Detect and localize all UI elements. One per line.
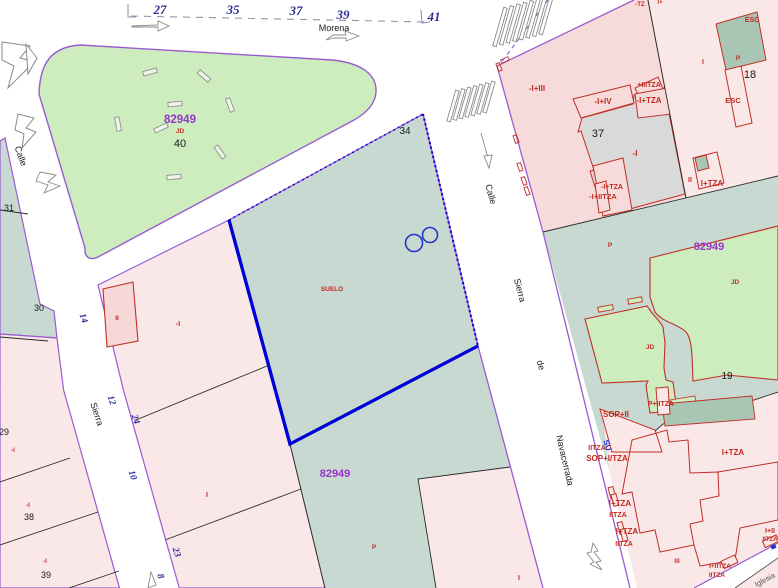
svg-text:IITZA: IITZA xyxy=(609,512,627,519)
svg-text:82949: 82949 xyxy=(320,468,351,480)
svg-text:II: II xyxy=(115,315,119,322)
svg-text:I: I xyxy=(518,575,520,582)
svg-text:IITZA: IITZA xyxy=(763,537,778,543)
svg-text:82949: 82949 xyxy=(694,241,725,253)
svg-text:I: I xyxy=(702,59,704,66)
svg-text:+IIITZA: +IIITZA xyxy=(637,82,661,89)
svg-text:-I+TZA: -I+TZA xyxy=(601,184,623,191)
svg-text:P: P xyxy=(736,55,741,62)
svg-text:II: II xyxy=(688,177,692,184)
svg-text:39: 39 xyxy=(336,7,351,22)
svg-text:I+TZA: I+TZA xyxy=(701,179,724,188)
svg-text:SOP+I/TZA: SOP+I/TZA xyxy=(586,454,628,463)
svg-text:ESC: ESC xyxy=(745,17,759,24)
svg-text:P: P xyxy=(372,544,377,551)
svg-text:III: III xyxy=(674,558,680,565)
svg-text:82949: 82949 xyxy=(164,114,196,126)
svg-text:34: 34 xyxy=(399,126,411,137)
svg-text:-I+IV: -I+IV xyxy=(594,97,612,106)
svg-text:31: 31 xyxy=(4,203,14,213)
svg-text:I+TZA: I+TZA xyxy=(616,527,639,536)
svg-text:37: 37 xyxy=(289,3,304,18)
svg-text:-TZ: -TZ xyxy=(635,2,645,8)
svg-text:I+IITZA: I+IITZA xyxy=(709,563,731,570)
svg-text:I+: I+ xyxy=(657,0,663,6)
svg-text:37: 37 xyxy=(592,128,604,140)
svg-text:19: 19 xyxy=(721,371,733,382)
svg-text:I+TZA: I+TZA xyxy=(609,499,632,508)
svg-text:P+IITZA: P+IITZA xyxy=(648,401,674,408)
svg-text:40: 40 xyxy=(174,138,186,150)
svg-text:-I: -I xyxy=(176,321,180,328)
svg-text:-I: -I xyxy=(633,149,638,158)
svg-text:IITZA: IITZA xyxy=(709,572,726,579)
svg-text:SOP+II: SOP+II xyxy=(603,410,629,419)
svg-text:27: 27 xyxy=(153,2,168,17)
svg-text:29: 29 xyxy=(0,427,9,437)
svg-text:35: 35 xyxy=(226,2,241,17)
svg-text:18: 18 xyxy=(744,69,756,81)
svg-text:SUELO: SUELO xyxy=(321,286,343,293)
svg-text:41: 41 xyxy=(427,9,441,24)
svg-text:-I: -I xyxy=(11,448,15,454)
svg-text:-I: -I xyxy=(43,559,47,565)
svg-text:I+II: I+II xyxy=(765,528,775,535)
svg-text:JD: JD xyxy=(731,279,740,286)
svg-text:I+TZA: I+TZA xyxy=(722,448,745,457)
svg-text:JD: JD xyxy=(646,344,655,351)
svg-text:38: 38 xyxy=(24,512,34,522)
svg-text:39: 39 xyxy=(41,570,51,580)
svg-text:-I: -I xyxy=(26,503,30,509)
svg-text:JD: JD xyxy=(176,128,185,135)
svg-text:30: 30 xyxy=(34,303,44,313)
svg-text:-I+III: -I+III xyxy=(529,84,545,93)
svg-text:ESC: ESC xyxy=(725,96,741,105)
svg-text:I: I xyxy=(206,492,208,499)
svg-text:Morena: Morena xyxy=(319,23,350,33)
svg-text:IITZA: IITZA xyxy=(615,541,633,548)
svg-text:-I+TZA: -I+TZA xyxy=(636,96,661,105)
svg-text:P: P xyxy=(608,242,613,249)
svg-text:-I+IITZA: -I+IITZA xyxy=(589,192,617,201)
